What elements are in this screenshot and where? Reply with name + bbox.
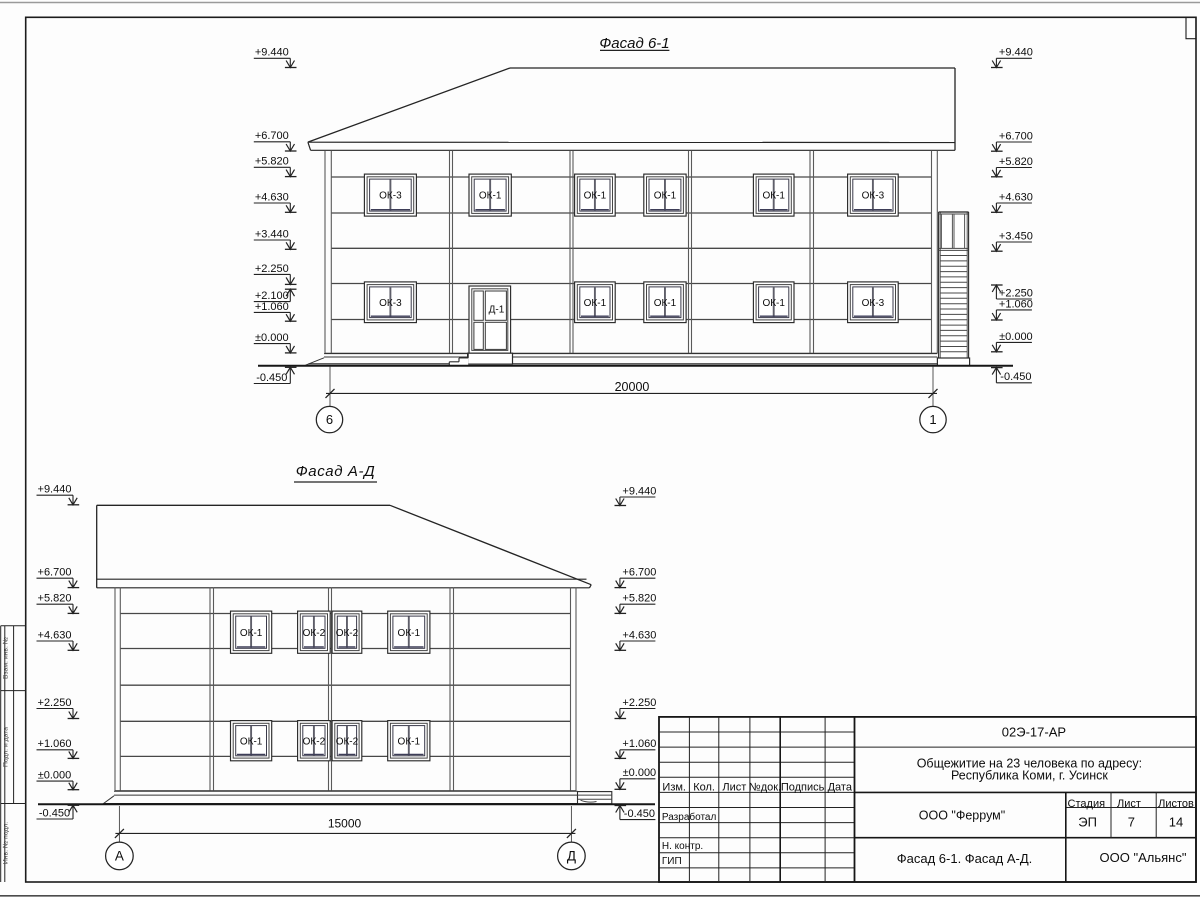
svg-text:+5.820: +5.820	[255, 156, 289, 168]
svg-text:ОК-1: ОК-1	[654, 191, 677, 202]
svg-text:+4.630: +4.630	[38, 629, 72, 641]
svg-text:+6.700: +6.700	[999, 130, 1033, 142]
svg-text:Дата: Дата	[828, 782, 853, 794]
svg-text:-0.450: -0.450	[39, 807, 70, 819]
svg-text:ООО "Альянс": ООО "Альянс"	[1100, 850, 1187, 865]
svg-text:20000: 20000	[615, 380, 650, 394]
svg-text:Фасад А-Д: Фасад А-Д	[296, 463, 376, 480]
svg-text:Стадия: Стадия	[1068, 798, 1106, 810]
svg-text:+1.060: +1.060	[38, 738, 72, 750]
svg-text:Подпись: Подпись	[781, 782, 825, 794]
svg-text:ОК-2: ОК-2	[303, 736, 326, 747]
svg-text:+5.820: +5.820	[999, 156, 1033, 168]
svg-text:ОК-1: ОК-1	[584, 191, 607, 202]
svg-text:ОК-1: ОК-1	[762, 191, 785, 202]
svg-text:7: 7	[1128, 815, 1135, 830]
svg-text:ОК-2: ОК-2	[303, 628, 326, 639]
svg-text:ОК-3: ОК-3	[379, 298, 402, 309]
svg-text:±0.000: ±0.000	[999, 331, 1033, 343]
svg-text:02Э-17-АР: 02Э-17-АР	[1002, 725, 1066, 740]
svg-text:А: А	[115, 849, 124, 864]
svg-text:-0.450: -0.450	[624, 808, 655, 820]
svg-text:ОК-1: ОК-1	[479, 191, 502, 202]
svg-text:ОК-2: ОК-2	[336, 736, 359, 747]
svg-text:+5.820: +5.820	[622, 593, 656, 605]
svg-text:Изм.: Изм.	[662, 782, 686, 794]
svg-text:+5.820: +5.820	[38, 593, 72, 605]
svg-text:ООО "Феррум": ООО "Феррум"	[919, 808, 1005, 822]
svg-text:+2.250: +2.250	[255, 263, 289, 275]
svg-text:±0.000: ±0.000	[623, 767, 657, 779]
svg-text:Инв. № подл.: Инв. № подл.	[3, 822, 10, 864]
svg-text:+1.060: +1.060	[622, 738, 656, 750]
svg-text:ОК-1: ОК-1	[398, 628, 421, 639]
svg-text:+6.700: +6.700	[255, 130, 289, 142]
svg-text:-0.450: -0.450	[256, 372, 287, 384]
svg-text:+9.440: +9.440	[255, 47, 289, 59]
svg-text:6: 6	[326, 412, 333, 427]
svg-text:ОК-1: ОК-1	[240, 736, 263, 747]
svg-text:±0.000: ±0.000	[38, 770, 72, 782]
svg-text:+6.700: +6.700	[622, 567, 656, 579]
svg-text:ОК-1: ОК-1	[584, 298, 607, 309]
svg-text:+9.440: +9.440	[622, 485, 656, 497]
svg-text:ОК-1: ОК-1	[240, 628, 263, 639]
svg-text:-0.450: -0.450	[1000, 371, 1031, 383]
svg-text:+4.630: +4.630	[622, 629, 656, 641]
svg-text:№док.: №док.	[749, 782, 781, 794]
svg-text:Разработал: Разработал	[662, 811, 717, 823]
svg-text:Взам. инв. №: Взам. инв. №	[3, 637, 10, 679]
svg-text:ГИП: ГИП	[662, 856, 682, 867]
svg-text:ОК-3: ОК-3	[862, 191, 885, 202]
svg-text:15000: 15000	[328, 816, 362, 830]
svg-text:+9.440: +9.440	[999, 47, 1033, 59]
svg-text:Лист: Лист	[1117, 798, 1141, 810]
svg-text:ОК-2: ОК-2	[336, 628, 359, 639]
svg-text:+6.700: +6.700	[38, 567, 72, 579]
svg-text:Н. контр.: Н. контр.	[662, 841, 703, 852]
svg-text:+4.630: +4.630	[255, 191, 289, 203]
svg-text:ЭП: ЭП	[1078, 815, 1097, 830]
svg-text:+4.630: +4.630	[999, 191, 1033, 203]
svg-text:Подп. и дата: Подп. и дата	[3, 727, 10, 767]
svg-text:Кол.: Кол.	[693, 782, 715, 794]
svg-text:Республика Коми, г. Усинск: Республика Коми, г. Усинск	[951, 769, 1108, 783]
svg-text:+2.250: +2.250	[622, 697, 656, 709]
svg-text:Лист: Лист	[722, 782, 746, 794]
svg-text:+1.060: +1.060	[999, 298, 1033, 310]
svg-text:ОК-3: ОК-3	[379, 191, 402, 202]
svg-text:1: 1	[929, 412, 936, 427]
svg-text:Фасад 6-1: Фасад 6-1	[599, 35, 669, 52]
svg-text:ОК-1: ОК-1	[654, 298, 677, 309]
svg-text:ОК-1: ОК-1	[398, 736, 421, 747]
svg-text:+1.060: +1.060	[255, 301, 289, 313]
svg-text:Д: Д	[567, 849, 576, 864]
svg-text:ОК-3: ОК-3	[862, 298, 885, 309]
svg-text:+3.440: +3.440	[255, 228, 289, 240]
svg-text:14: 14	[1169, 815, 1183, 830]
svg-text:+2.250: +2.250	[38, 697, 72, 709]
svg-text:±0.000: ±0.000	[255, 332, 289, 344]
svg-text:Листов: Листов	[1158, 798, 1194, 810]
svg-text:+9.440: +9.440	[38, 484, 72, 496]
svg-text:+3.450: +3.450	[999, 230, 1033, 242]
svg-text:Д-1: Д-1	[489, 305, 505, 316]
svg-text:ОК-1: ОК-1	[762, 298, 785, 309]
svg-text:Фасад 6-1. Фасад А-Д.: Фасад 6-1. Фасад А-Д.	[897, 851, 1033, 866]
